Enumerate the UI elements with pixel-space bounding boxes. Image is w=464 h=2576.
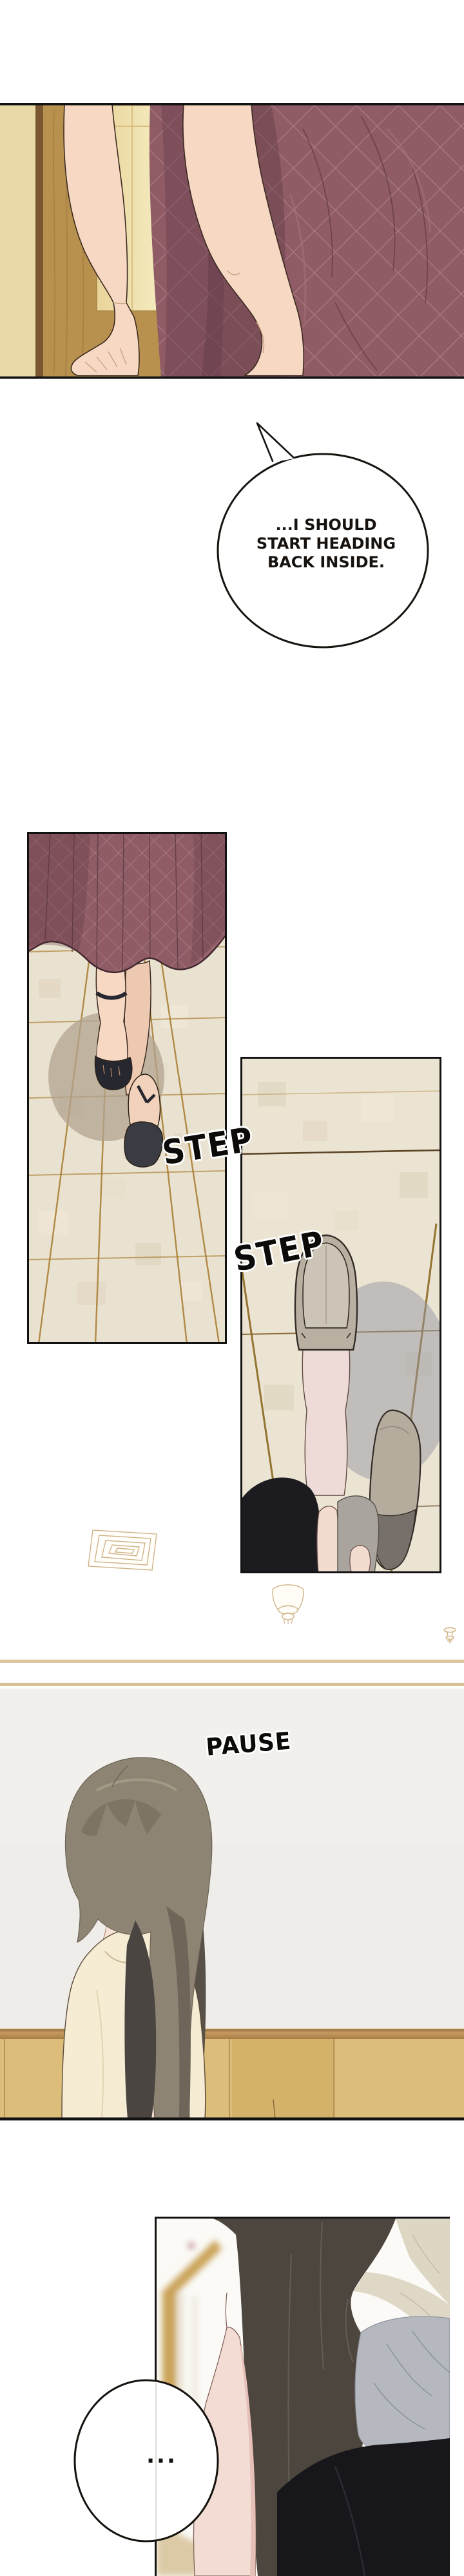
bubble1-line1: ...I SHOULD — [242, 516, 411, 535]
smoke-detector-sketch — [271, 1583, 307, 1625]
ceiling-vent-sketch — [84, 1526, 161, 1575]
sprinkler-head-icon — [442, 1627, 459, 1645]
webtoon-page: ...I SHOULD START HEADING BACK INSIDE. — [0, 0, 464, 2576]
bubble2-text: ... — [137, 2443, 186, 2468]
panel-walking-loafers — [240, 1057, 441, 1573]
bubble1-line3: BACK INSIDE. — [242, 553, 411, 572]
ceiling-molding-line-2 — [0, 1683, 464, 1686]
ceiling-molding-line-1 — [0, 1660, 464, 1663]
panel-bed-legs — [0, 103, 464, 379]
panel-walking-flipflops — [27, 832, 227, 1344]
bubble1-text: ...I SHOULD START HEADING BACK INSIDE. — [242, 516, 411, 572]
bubble1-line2: START HEADING — [242, 535, 411, 553]
